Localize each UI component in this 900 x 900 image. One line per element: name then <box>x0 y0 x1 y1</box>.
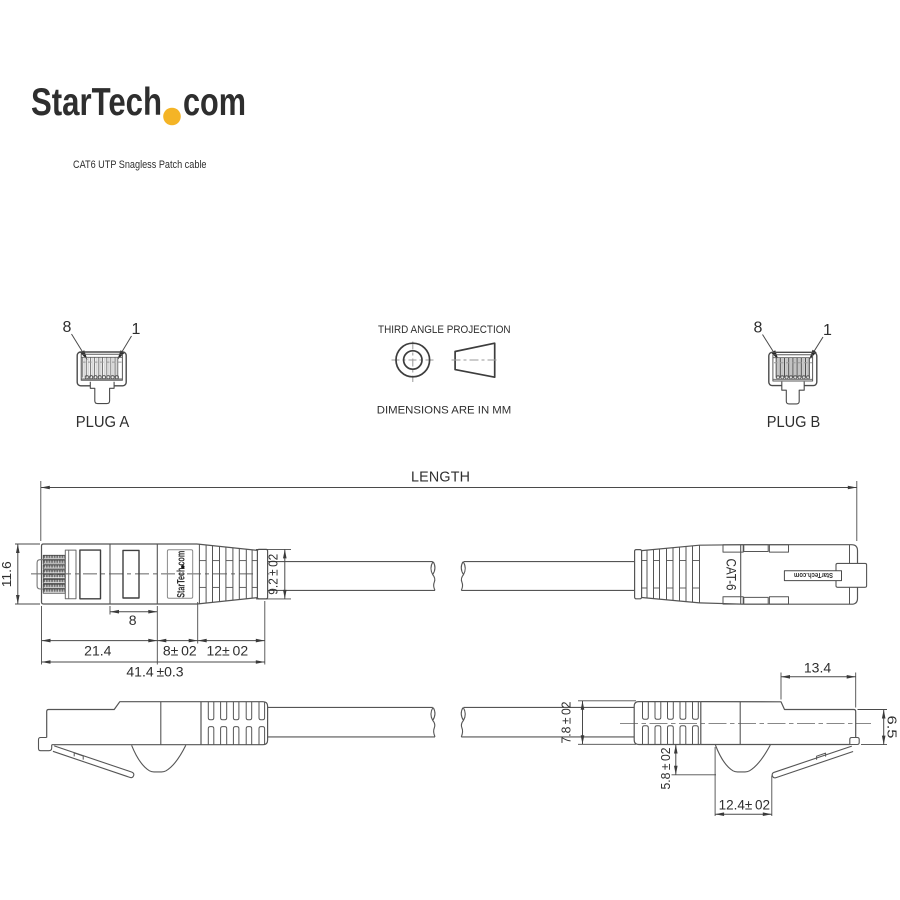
svg-text:8: 8 <box>63 319 72 336</box>
svg-text:12.4± 02: 12.4± 02 <box>719 798 770 813</box>
svg-text:PLUG A: PLUG A <box>76 414 130 431</box>
svg-text:41.4 ±0.3: 41.4 ±0.3 <box>126 664 183 680</box>
svg-text:13.4: 13.4 <box>804 659 831 675</box>
svg-text:1: 1 <box>132 321 141 338</box>
svg-text:8± 02: 8± 02 <box>163 643 197 659</box>
svg-text:6.5: 6.5 <box>885 716 900 739</box>
svg-text:THIRD ANGLE PROJECTION: THIRD ANGLE PROJECTION <box>378 324 511 336</box>
svg-text:8: 8 <box>754 320 763 337</box>
svg-text:StarTech: StarTech <box>31 81 162 124</box>
svg-text:DIMENSIONS ARE IN MM: DIMENSIONS ARE IN MM <box>377 404 512 416</box>
svg-text:StarTech.com: StarTech.com <box>176 551 188 598</box>
svg-text:11.6: 11.6 <box>0 561 14 587</box>
svg-text:21.4: 21.4 <box>84 643 111 659</box>
svg-text:8: 8 <box>129 612 137 628</box>
svg-text:7.8 ± 02: 7.8 ± 02 <box>559 702 574 744</box>
svg-text:CAT-6: CAT-6 <box>724 559 740 591</box>
svg-text:CAT6 UTP Snagless Patch cable: CAT6 UTP Snagless Patch cable <box>73 159 207 171</box>
svg-text:PLUG B: PLUG B <box>767 414 821 431</box>
svg-text:5.8 ± 02: 5.8 ± 02 <box>658 748 673 790</box>
svg-text:com: com <box>183 81 246 124</box>
svg-text:12± 02: 12± 02 <box>206 643 248 659</box>
svg-text:StarTech.com: StarTech.com <box>794 571 833 580</box>
svg-text:1: 1 <box>823 322 832 339</box>
svg-text:9.2 ± 02: 9.2 ± 02 <box>266 554 281 595</box>
svg-text:LENGTH: LENGTH <box>411 470 470 486</box>
